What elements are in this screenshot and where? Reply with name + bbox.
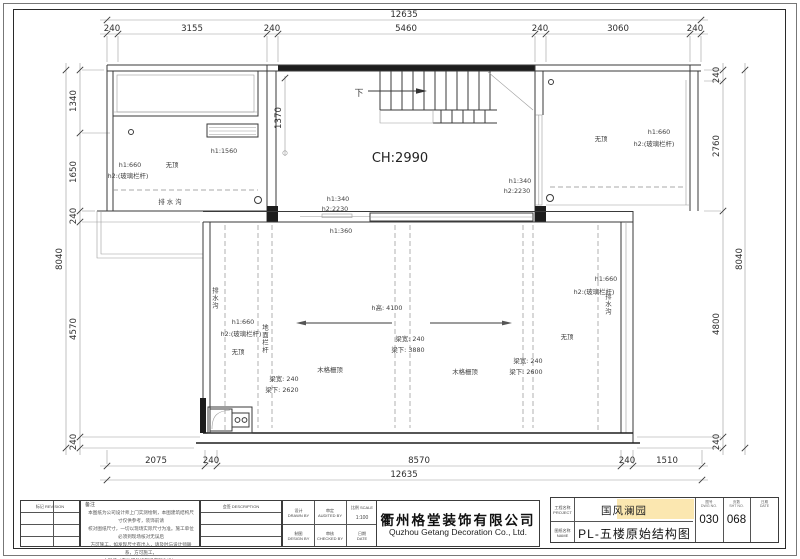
label-beam3-under: 梁下: 2600 [509,367,542,376]
label-wall-sill: h1:360 [330,227,352,235]
sheet-no-cell: 页数 SHT NO. 068 [723,498,750,544]
fields-table: 设计 DRAWN BY 审定 AUDITED BY 比例 SCALE 1:100… [282,500,377,547]
dim-top-seg: 5460 [395,24,417,34]
dim-top-seg: 240 [264,24,280,34]
label-h1-tl: h1:660 [119,161,141,169]
dim-bottom-seg: 8570 [408,456,430,466]
label-beam3-width: 梁宽: 240 [513,356,542,365]
dimension-top: 12635 240 3155 240 5460 240 3060 240 [100,10,708,62]
dim-top-seg: 240 [104,24,120,34]
plan-labels: h1:1560 无顶 h1:660 h2:(玻璃栏杆) 排 水 沟 下 CH:2… [108,89,675,394]
drawing-name-label: 图纸名称 NAME [551,521,574,544]
label-wall-h1: h1:340 [327,195,349,203]
project-name-cell: 国风澜园 [574,498,695,521]
date-header: 日期 DATE [750,500,779,509]
field-audit: 审定 AUDITED BY [314,501,346,524]
signoff-table: 会签 DESCRIPTION [200,500,282,547]
dim-right-seg: 4800 [712,313,722,335]
label-wall-h1-right: h1:340 [509,177,531,185]
dim-right-total: 8040 [735,248,745,270]
sheet-no: 068 [723,514,750,526]
label-wall-h2-right: h2:2230 [504,187,531,195]
dim-top-seg: 3060 [607,24,629,34]
dim-bottom-seg: 1510 [656,456,678,466]
plan-walls [97,65,701,443]
company-name-cn: 衢州格堂装饰有限公司 [377,509,539,529]
dim-left-seg: 240 [69,208,79,224]
dim-right-seg: 240 [712,67,722,83]
field-scale: 比例 SCALE [346,501,378,513]
dim-right-seg: 2760 [712,135,722,157]
figure-no-header: 图号 DWG NO. [695,500,723,509]
dim-left-seg: 240 [69,434,79,450]
label-wood-ceiling-2: 木格栅顶 [452,367,478,376]
revision-table: 标记 REVISION [20,500,80,547]
dimension-right: 240 2760 4800 240 8040 [637,63,748,455]
dim-top-total: 12635 [390,10,417,20]
field-date: 日期 DATE [346,524,378,548]
company-name-en: Quzhou Getang Decoration Co., Ltd. [377,527,539,537]
dim-bottom-seg: 2075 [145,456,167,466]
label-no-roof-tr: 无顶 [595,135,608,143]
label-h2-tl: h2:(玻璃栏杆) [108,171,149,180]
label-h1-main-right: h1:660 [595,275,617,283]
dim-left-seg: 1650 [69,161,79,183]
label-no-roof-main-left: 无顶 [232,348,245,356]
label-h1-tr: h1:660 [648,128,670,136]
field-check: 审核 CHECKED BY [314,524,346,548]
label-ceiling-height: CH:2990 [372,151,428,166]
project-block: 工程名称 PROJECT 图纸名称 NAME 国风澜园 PL-五楼原始结构图 图… [550,497,779,543]
label-floor-rail: 地面栏杆 [261,323,269,354]
figure-no: 030 [695,514,723,526]
project-label: 工程名称 PROJECT [551,498,574,521]
label-h1-1560: h1:1560 [211,147,238,155]
label-no-roof-tl: 无顶 [166,161,179,169]
field-design: 设计 DRAWN BY [283,501,314,524]
label-height-note: h高: 4100 [372,303,403,312]
date-cell: 日期 DATE [750,498,779,544]
dim-bottom-seg: 240 [203,456,219,466]
signoff-header: 会签 DESCRIPTION [201,501,281,512]
figure-no-cell: 图号 DWG NO. 030 [695,498,723,544]
label-gutter-left: 排水沟 [211,286,219,310]
label-stair-down: 下 [354,89,363,99]
dim-left-total: 8040 [55,248,65,270]
dim-top-seg: 240 [687,24,703,34]
dimension-bottom: 2075 240 8570 240 1510 12635 [100,450,708,483]
notes-box: 备注 本图纸为公司设计师上门实测绘制，本图建筑结构尺寸仅供参考，装饰前请 校对图… [80,500,200,547]
drawing-title: PL-五楼原始结构图 [574,525,695,542]
label-h2-main-left: h2:(玻璃栏杆) [221,329,262,338]
notes-label: 备注 [83,502,97,509]
label-h1-main-left: h1:660 [232,318,254,326]
notes-text: 本图纸为公司设计师上门实测绘制，本图建筑结构尺寸仅供参考，装饰前请 校对图纸尺寸… [87,509,195,559]
company-block: 衢州格堂装饰有限公司 Quzhou Getang Decoration Co.,… [377,500,540,547]
staircase [368,71,533,123]
label-h2-main-right: h2:(玻璃栏杆) [574,287,615,296]
label-h2-tr: h2:(玻璃栏杆) [634,139,675,148]
dimension-left: 1340 1650 240 4570 240 8040 [55,63,200,455]
sheet-no-header: 页数 SHT NO. [723,500,750,509]
field-draft: 制图 DESIGN BY [283,524,314,548]
label-no-roof-main-right: 无顶 [561,333,574,341]
label-wood-ceiling-1: 木格栅顶 [317,365,343,374]
dim-stair-bay: 1370 [274,107,284,129]
drawing-title-cell: PL-五楼原始结构图 [574,521,695,544]
beams-and-gutters [225,225,598,430]
floorplan-drawing: 12635 240 3155 240 5460 240 3060 240 207… [0,0,800,559]
dim-left-seg: 1340 [69,90,79,112]
label-beam1-width: 梁宽: 240 [269,374,298,383]
project-name: 国风澜园 [601,503,647,518]
floorplan-sheet: 12635 240 3155 240 5460 240 3060 240 207… [0,0,800,559]
revision-header: 标记 REVISION [21,501,79,512]
label-beam2-under: 梁下: 3880 [391,345,424,354]
dim-left-seg: 4570 [69,318,79,340]
field-scale-value: 1:100 [346,513,378,524]
dim-top-seg: 3155 [181,24,203,34]
label-beam2-width: 梁宽: 240 [395,334,424,343]
dim-bottom-seg: 240 [619,456,635,466]
dim-right-seg: 240 [712,434,722,450]
label-gutter-tl: 排 水 沟 [158,197,181,206]
label-wall-h2: h2:2230 [322,205,349,213]
dim-bottom-total: 12635 [390,470,417,480]
dim-top-seg: 240 [532,24,548,34]
label-beam1-under: 梁下: 2620 [265,385,298,394]
